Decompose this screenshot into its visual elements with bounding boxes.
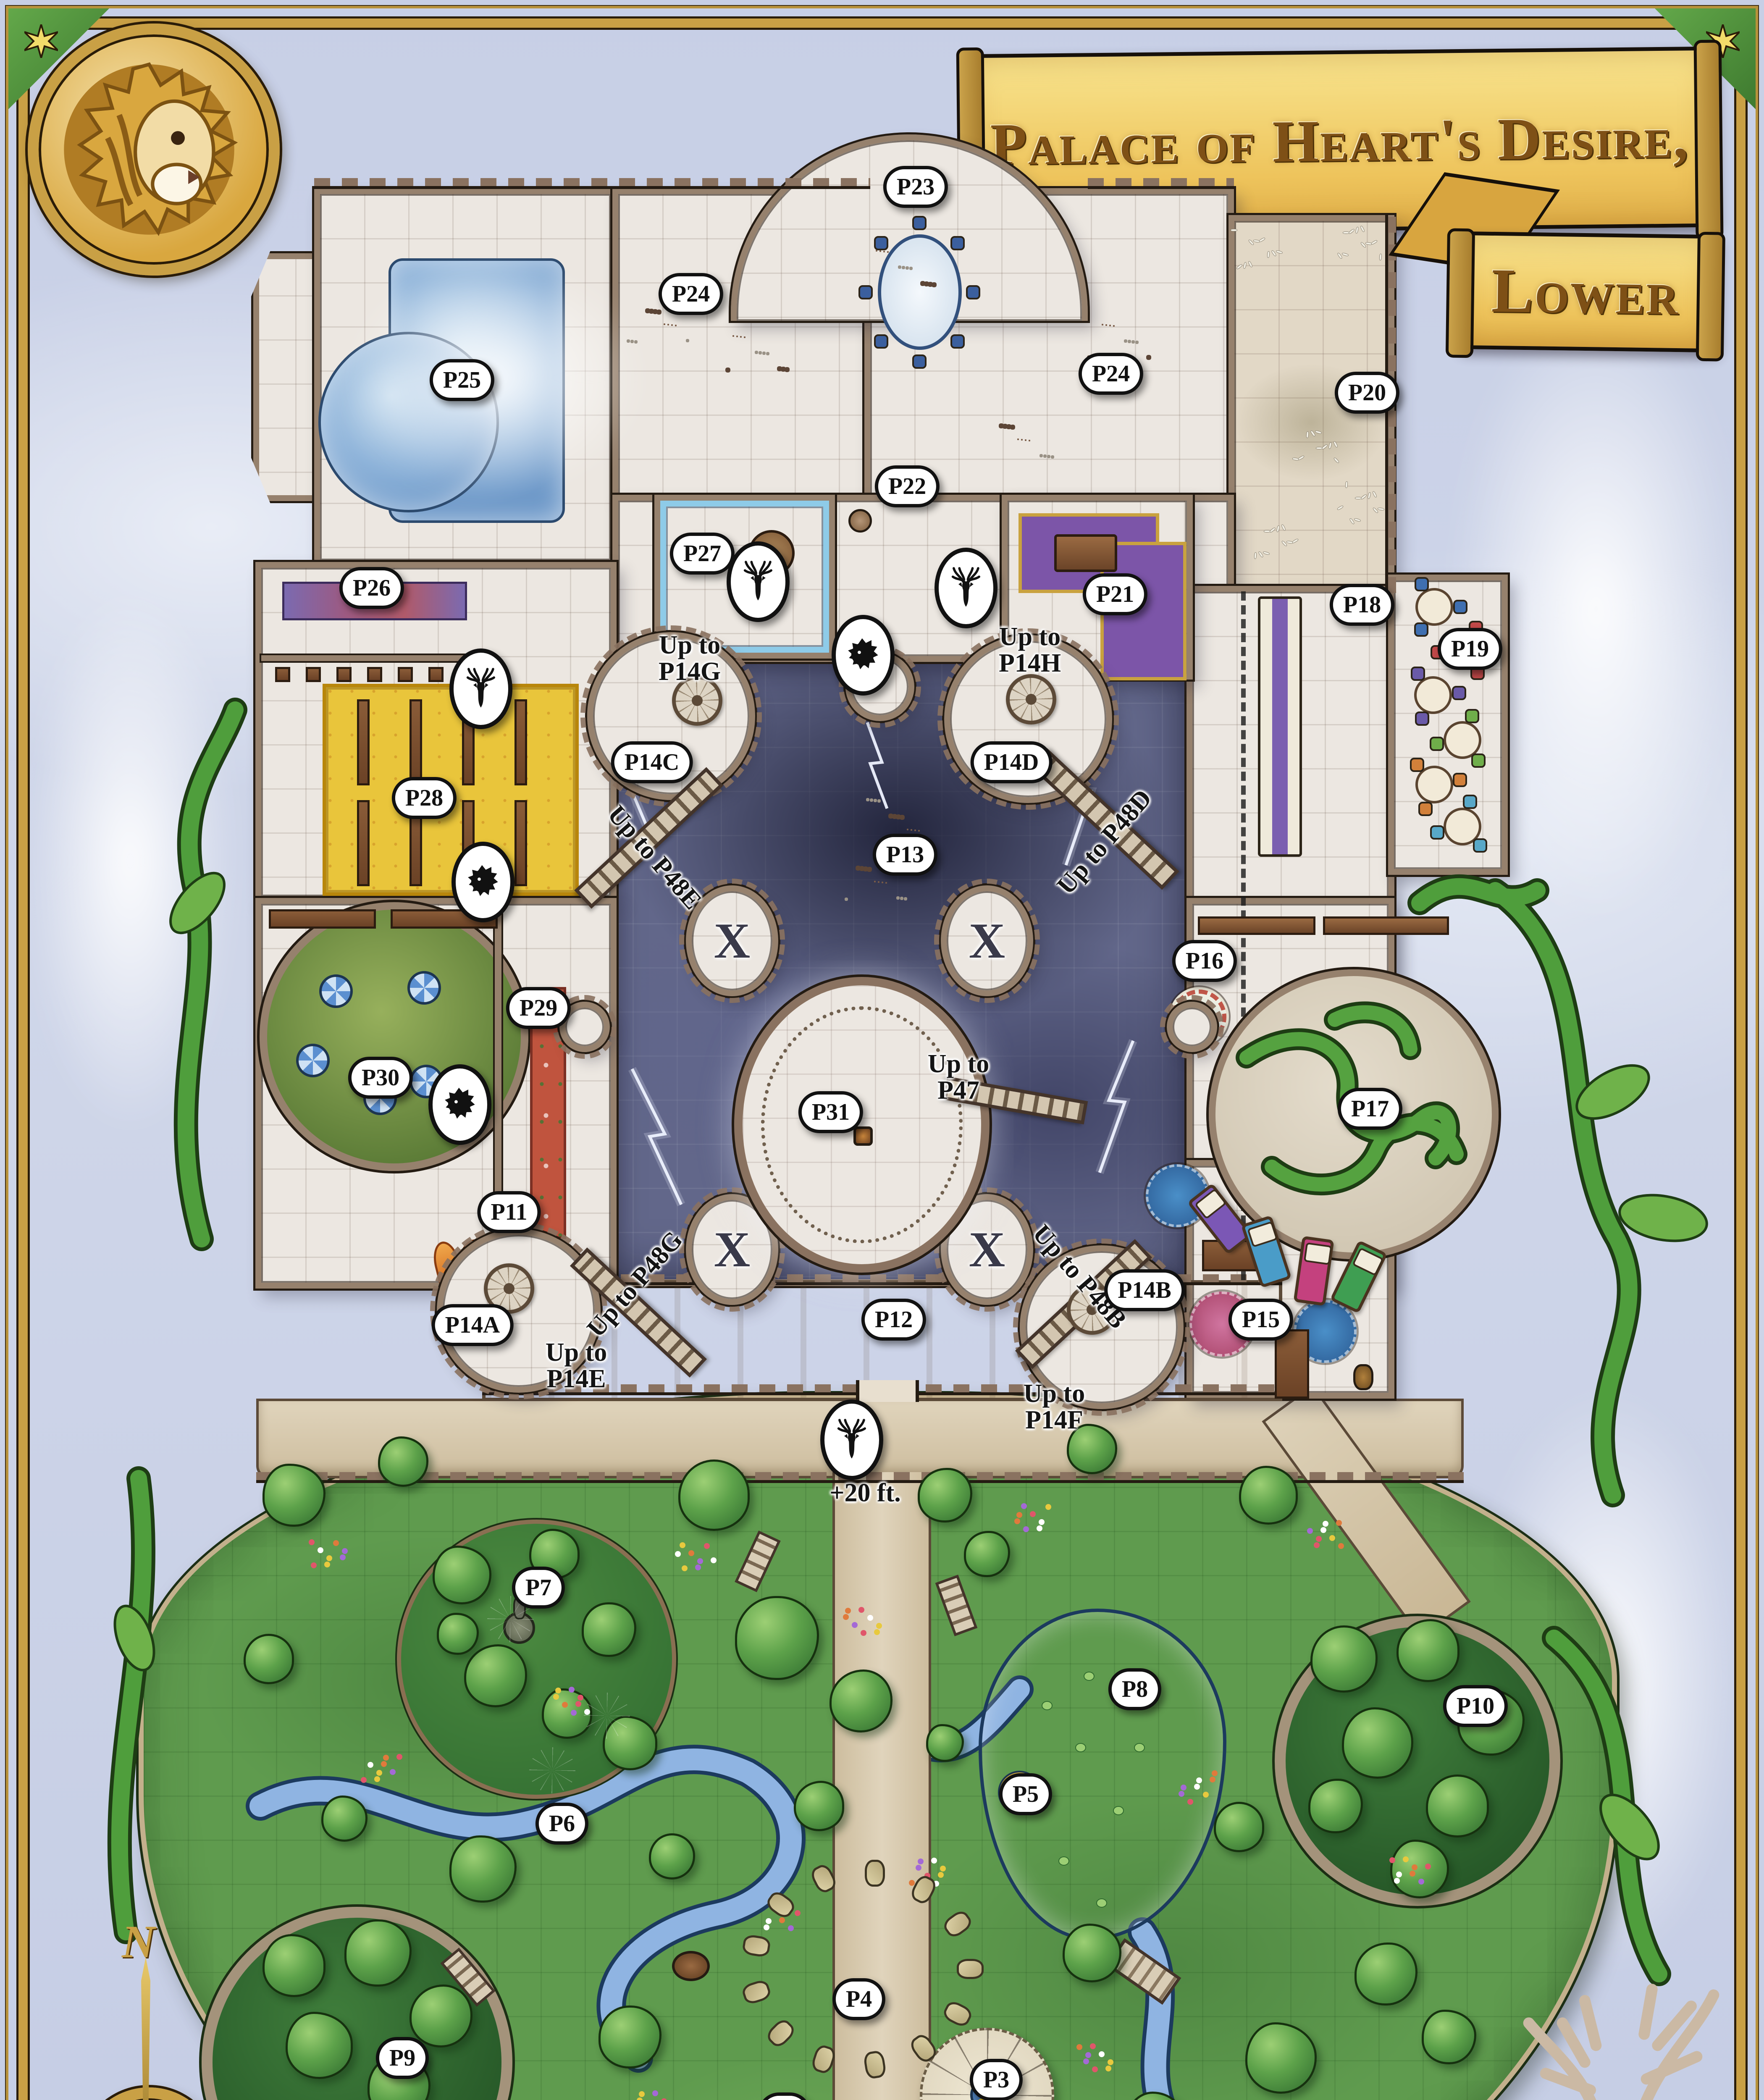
rug-p15-pink <box>1189 1291 1255 1357</box>
wall <box>261 655 475 661</box>
giant-vines-p17 <box>1209 969 1499 1259</box>
north-wall <box>314 178 870 189</box>
fountain-p5 <box>1000 1772 1039 1812</box>
annex-octagon <box>251 251 325 503</box>
stag-icon <box>1478 1932 1747 2100</box>
table-p18 <box>1258 596 1302 857</box>
compass-north-label: N <box>122 1915 155 1969</box>
room-p20 <box>1228 215 1394 593</box>
rug-p26 <box>282 582 467 620</box>
table-p15b <box>1275 1329 1309 1399</box>
palace-map: P23P24P25P24P20P22P26P27P21P18P19P14CP14… <box>0 0 1764 2100</box>
stag-head-ornament <box>1478 1932 1747 2100</box>
east-wall <box>1385 215 1396 593</box>
balcony-p19 <box>1388 575 1508 875</box>
spiral-stair-p14f <box>1067 1284 1117 1335</box>
central-path <box>832 1472 931 2100</box>
shelf-p16 <box>1198 916 1315 935</box>
platform-pillar-ring <box>761 1006 963 1243</box>
carpet-p28 <box>323 684 579 896</box>
shelf-p16 <box>1323 916 1449 935</box>
garden-wall <box>256 1472 1464 1483</box>
grove-p10 <box>1275 1616 1560 1906</box>
stump-p6 <box>672 1951 710 1981</box>
pond-p30 <box>260 902 528 1171</box>
map-title: Palace of Heart's Desire, <box>990 102 1690 178</box>
terrace-gate <box>856 1380 919 1402</box>
barrel-p15 <box>1353 1364 1373 1390</box>
tower-small-west <box>559 1002 610 1052</box>
map-subtitle: Lower <box>1491 255 1680 329</box>
pedestal-p22 <box>848 509 872 533</box>
brazier <box>853 1126 873 1146</box>
spiral-stair-p14e <box>484 1263 534 1314</box>
grove-p7 <box>397 1520 676 1799</box>
north-wall <box>1088 178 1234 189</box>
compass-rose: N <box>63 1932 265 2100</box>
pool-p25-round <box>318 332 499 512</box>
table-p21 <box>1054 534 1117 572</box>
wall <box>495 902 501 1247</box>
spiral-stair-p14g <box>672 675 722 726</box>
statue-p7 <box>513 1596 526 1620</box>
tower-x-ne <box>941 885 1033 996</box>
rug-p27 <box>748 530 795 576</box>
lion-icon <box>39 34 269 265</box>
rug-p15-blue <box>1146 1164 1209 1227</box>
table-p23 <box>878 234 962 350</box>
spiral-stair-p14h <box>1006 674 1056 724</box>
tower-small-north <box>845 652 914 721</box>
compass-dial <box>80 2087 218 2100</box>
lion-head-ornament <box>28 24 280 276</box>
tower-p14c <box>587 632 755 800</box>
compass-needle <box>141 1957 150 2100</box>
tower-x-nw <box>686 885 778 996</box>
subtitle-banner: Lower <box>1454 231 1717 353</box>
